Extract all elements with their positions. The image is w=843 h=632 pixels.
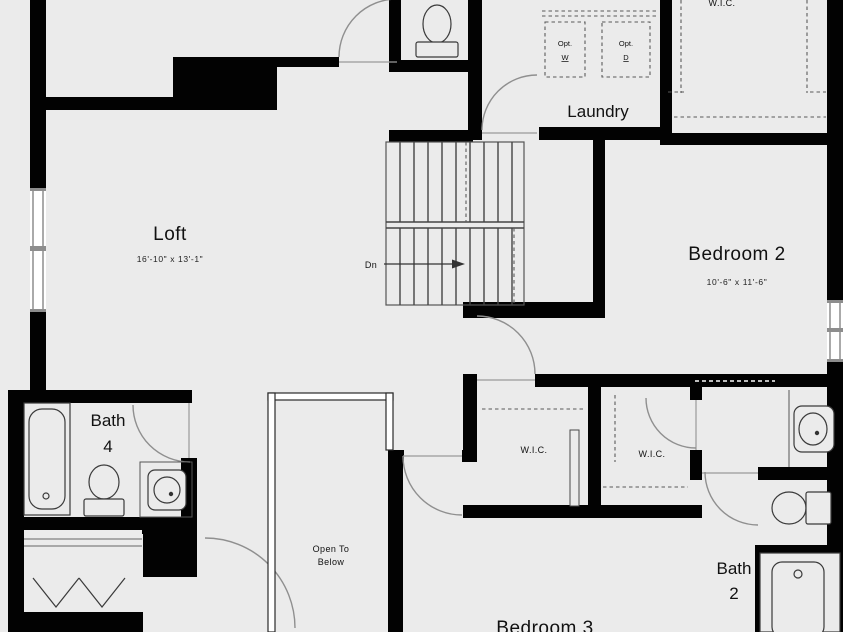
laundry-label: Laundry: [567, 102, 629, 121]
loft-label: Loft: [153, 224, 187, 245]
wall-bedroom3-west: [388, 450, 403, 632]
window-right: [827, 300, 843, 362]
bath2-toilet: [772, 492, 831, 524]
wall-hall-south: [535, 374, 843, 387]
wall-laundry-west: [468, 0, 482, 140]
open-to-below-line2: Below: [318, 557, 345, 567]
optional-washer-line1: Opt.: [558, 39, 572, 48]
wall-stairs-north: [389, 130, 473, 142]
loft-dimensions: 16'-10" x 13'-1": [137, 254, 204, 264]
wall-laundry-wic-divider: [660, 0, 672, 145]
wall-bath4-south: [22, 517, 142, 530]
wall-bedroom2-west: [593, 133, 605, 318]
wall-loft-north: [46, 97, 173, 110]
wall-bedroom3-north: [463, 505, 702, 518]
plan-background: [0, 0, 843, 632]
bath2-label-line2: 2: [729, 584, 738, 603]
wall-left-upper: [30, 0, 46, 188]
floor-plan-svg: Loft 16'-10" x 13'-1" Laundry Opt. W Opt…: [0, 0, 843, 632]
window-left: [30, 188, 46, 312]
wall-right-upper: [827, 0, 843, 302]
bath2-label-line1: Bath: [717, 559, 752, 578]
wall-bath2-mid: [758, 467, 843, 480]
wall-block-top: [173, 57, 277, 110]
wall-bottom-left: [8, 612, 143, 632]
bedroom2-label: Bedroom 2: [688, 244, 785, 265]
bath4-label-line1: Bath: [91, 411, 126, 430]
wall-hall-top: [277, 57, 339, 67]
wall-laundry-south: [539, 127, 672, 140]
wall-wicright-east-upper: [690, 387, 702, 400]
wall-toiletroom-west: [389, 0, 401, 62]
floor-plan: Loft 16'-10" x 13'-1" Laundry Opt. W Opt…: [0, 0, 843, 632]
wall-closet-block: [143, 530, 197, 577]
wall-wic-divider: [588, 385, 601, 518]
wic-left-door-leaf: [570, 430, 579, 506]
wall-bath4-north: [8, 390, 192, 403]
open-to-below-line1: Open To: [313, 544, 350, 554]
wic-right-label: W.I.C.: [639, 449, 666, 459]
wall-left-mid: [30, 312, 46, 392]
bath4-label-line2: 4: [103, 437, 112, 456]
wic-left-label: W.I.C.: [521, 445, 548, 455]
wall-left-lower: [8, 390, 24, 632]
railing-left: [268, 393, 275, 632]
bedroom2-dimensions: 10'-6" x 11'-6": [707, 277, 768, 287]
railing-right: [386, 393, 393, 450]
wall-wicright-east-lower: [690, 450, 702, 480]
stair-dn-label: Dn: [365, 260, 377, 270]
bath4-tub: [24, 403, 70, 515]
bath2-tub: [760, 553, 840, 632]
wic-top-label: W.I.C.: [709, 0, 736, 8]
wall-bedroom3-door-stub2: [462, 450, 477, 462]
optional-dryer-line2: D: [623, 53, 629, 62]
bedroom3-label: Bedroom 3: [496, 618, 593, 632]
railing-top: [268, 393, 393, 400]
optional-dryer-line1: Opt.: [619, 39, 633, 48]
wall-bedroom2-north: [660, 133, 843, 145]
optional-washer-line2: W: [561, 53, 569, 62]
